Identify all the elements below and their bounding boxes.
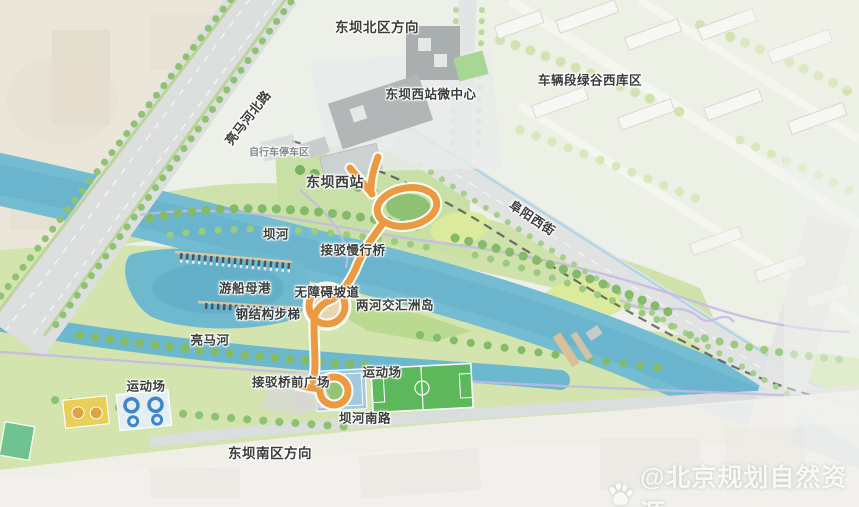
yellow-courts	[63, 396, 110, 428]
map-canvas	[0, 0, 859, 507]
green-court	[0, 422, 35, 461]
round-courts	[116, 389, 171, 430]
east-fade	[784, 140, 859, 425]
micro-center-building-a	[406, 26, 460, 80]
planning-map: 东坝北区方向 亮马河北路 东坝西站微中心 车辆段绿谷西库区 自行车停车区 东坝西…	[0, 0, 859, 507]
football-field	[371, 363, 473, 412]
